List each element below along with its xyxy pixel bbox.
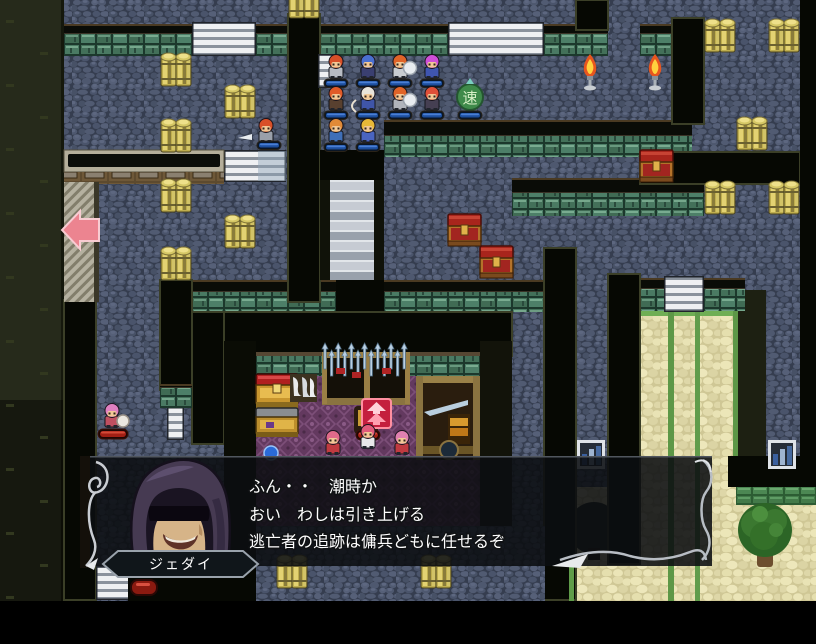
svg-text:逃亡者の追跡は傭兵どもに任せるぞ: 逃亡者の追跡は傭兵どもに任せるぞ [249, 533, 505, 551]
svg-text:ふん・・ 潮時か: ふん・・ 潮時か [249, 478, 377, 496]
svg-text:ジェダイ: ジェダイ [149, 556, 213, 572]
svg-text:おい わしは引き上げる: おい わしは引き上げる [249, 506, 425, 524]
svg-text:速: 速 [462, 90, 477, 107]
